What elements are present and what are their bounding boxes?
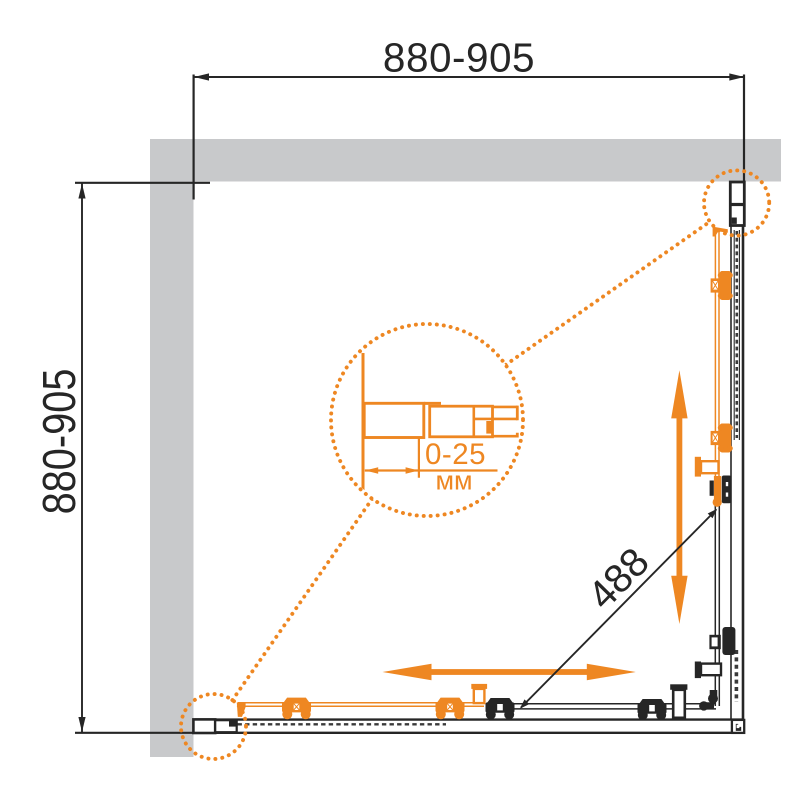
svg-text:мм: мм bbox=[435, 466, 472, 496]
svg-text:880-905: 880-905 bbox=[34, 369, 86, 515]
svg-text:880-905: 880-905 bbox=[383, 35, 535, 81]
